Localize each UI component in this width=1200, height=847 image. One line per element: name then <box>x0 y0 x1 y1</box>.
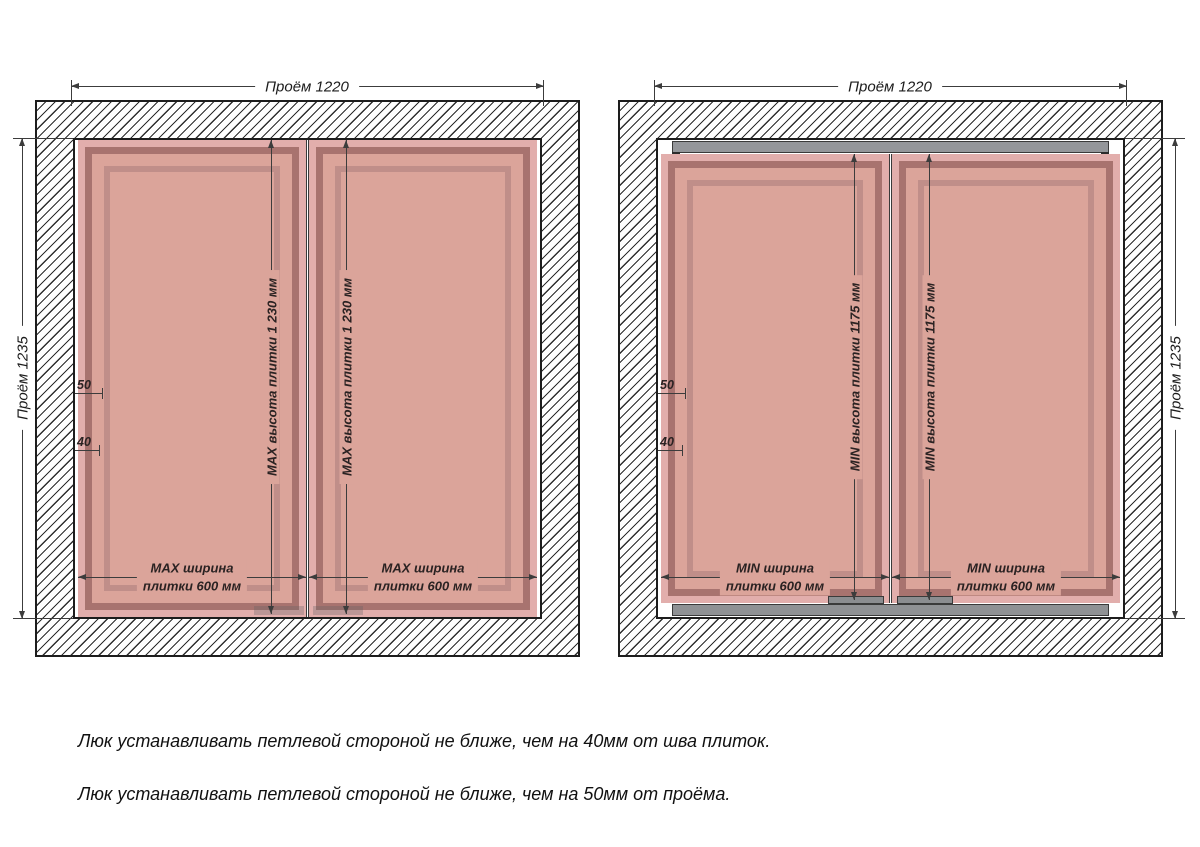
tile-width-label: MAX ширина плитки 600 мм <box>368 558 478 595</box>
arrow-left-icon <box>661 574 669 580</box>
opening-width-label: Проём 1220 <box>255 79 359 96</box>
tile-width-label-line2: плитки 600 мм <box>957 577 1055 595</box>
tile-width-label: MAX ширина плитки 600 мм <box>137 558 247 595</box>
arrow-up-icon <box>926 154 932 162</box>
tile-inner-frame <box>687 180 863 577</box>
arrow-down-icon <box>1172 611 1178 619</box>
tile-inner-frame <box>104 166 280 591</box>
offset-40-label: 40 <box>77 435 91 449</box>
arrow-down-icon <box>851 592 857 600</box>
tile-height-label: MIN высота плитки 1175 мм <box>923 275 938 479</box>
arrow-left-icon <box>309 574 317 580</box>
tile-width-label: MIN ширина плитки 600 мм <box>720 558 830 595</box>
hatch-frame-bottom-bar <box>672 604 1109 616</box>
dim-tick <box>99 445 100 456</box>
opening <box>656 138 1125 619</box>
tile-inner-frame <box>335 166 511 591</box>
tile-inner-frame <box>918 180 1094 577</box>
arrow-up-icon <box>268 140 274 148</box>
dim-tick <box>682 445 683 456</box>
offset-40-label: 40 <box>660 435 674 449</box>
arrow-down-icon <box>268 606 274 614</box>
tile-width-label-line2: плитки 600 мм <box>726 577 824 595</box>
arrow-up-icon <box>343 140 349 148</box>
tile-width-label-line1: MAX ширина <box>143 559 241 577</box>
offset-50-label: 50 <box>660 378 674 392</box>
hinge-right <box>897 596 953 604</box>
arrow-down-icon <box>926 592 932 600</box>
tile-width-label-line1: MIN ширина <box>957 559 1055 577</box>
tile-height-label: MAX высота плитки 1 230 мм <box>340 270 355 484</box>
dim-line-offset-40 <box>75 450 100 451</box>
tile-width-label: MIN ширина плитки 600 мм <box>951 558 1061 595</box>
arrow-left-icon <box>654 83 662 89</box>
dim-line-offset-50 <box>75 393 103 394</box>
tile-width-label-line2: плитки 600 мм <box>374 577 472 595</box>
dim-line-offset-50 <box>658 393 686 394</box>
arrow-up-icon <box>1172 138 1178 146</box>
arrow-up-icon <box>851 154 857 162</box>
arrow-right-icon <box>1112 574 1120 580</box>
offset-50-label: 50 <box>77 378 91 392</box>
note-hinge-seam-offset: Люк устанавливать петлевой стороной не б… <box>78 731 770 752</box>
opening-width-label: Проём 1220 <box>838 79 942 96</box>
tile-height-label: MAX высота плитки 1 230 мм <box>265 270 280 484</box>
arrow-right-icon <box>529 574 537 580</box>
note-hinge-opening-offset: Люк устанавливать петлевой стороной не б… <box>78 784 730 805</box>
dim-tick <box>102 388 103 399</box>
diagram-min-tile-size: Проём 1220 Проём 1235 MIN высота плитки … <box>618 100 1163 657</box>
arrow-right-icon <box>1119 83 1127 89</box>
drawing-page: Проём 1220 Проём 1235 MAX высота плитки … <box>0 0 1200 847</box>
arrow-down-icon <box>19 611 25 619</box>
tile-width-label-line2: плитки 600 мм <box>143 577 241 595</box>
dim-tick <box>685 388 686 399</box>
arrow-left-icon <box>892 574 900 580</box>
arrow-down-icon <box>343 606 349 614</box>
hinge-shadow-left <box>254 606 304 615</box>
hinge-shadow-right <box>313 606 363 615</box>
arrow-right-icon <box>536 83 544 89</box>
tile-width-label-line1: MIN ширина <box>726 559 824 577</box>
arrow-right-icon <box>298 574 306 580</box>
hatch-frame-top-bar <box>672 141 1109 153</box>
opening <box>73 138 542 619</box>
opening-height-label: Проём 1235 <box>15 326 32 430</box>
arrow-right-icon <box>881 574 889 580</box>
arrow-left-icon <box>78 574 86 580</box>
arrow-up-icon <box>19 138 25 146</box>
dim-line-offset-40 <box>658 450 683 451</box>
arrow-left-icon <box>71 83 79 89</box>
tile-width-label-line1: MAX ширина <box>374 559 472 577</box>
opening-height-label: Проём 1235 <box>1168 326 1185 430</box>
diagram-max-tile-size: Проём 1220 Проём 1235 MAX высота плитки … <box>35 100 580 657</box>
tile-height-label: MIN высота плитки 1175 мм <box>848 275 863 479</box>
